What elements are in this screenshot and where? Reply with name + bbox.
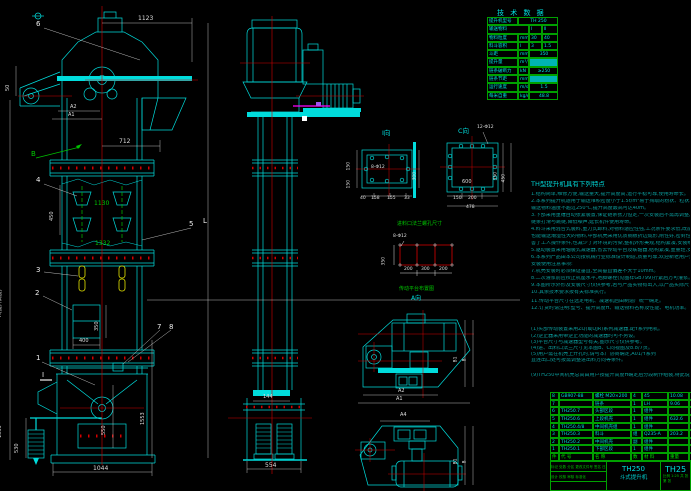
view-i-33: 33 bbox=[404, 197, 410, 202]
bom-wt bbox=[668, 407, 689, 415]
view-c-450: 450 bbox=[503, 174, 508, 183]
view-i-300: 300 bbox=[414, 172, 419, 181]
balloon-1: 1 bbox=[36, 355, 40, 362]
tech-value: 30 bbox=[529, 34, 542, 42]
inlet-holes: 8-Φ12 bbox=[393, 235, 407, 240]
bom-mat: 组件 bbox=[642, 445, 668, 453]
inlet-350: 350 bbox=[383, 257, 388, 266]
revision-row: 标记 处数 分区 更改文件号 签名 日期 bbox=[551, 462, 606, 472]
bom-code: GB907-88 bbox=[559, 392, 593, 400]
note-line: 善了工人操作条件,也减少了对环境的污染,整机外形美观,结构紧凑,安装维修方便,运… bbox=[531, 241, 690, 247]
note-line: 1.结构简单,维修方便,输送量大,提升高度高,运行平稳可靠,使用寿命长。 bbox=[531, 192, 690, 198]
bom-no: 2 bbox=[550, 438, 559, 446]
note-line: 12.订货时请注明:型号、提升高度H、输送物料名称及性能、电机功率。 bbox=[531, 306, 690, 312]
note-line: (9)TH250中间机壳总高由用户按提升高度H确定后分段制作组装,特此说明。 bbox=[531, 373, 690, 379]
drawing-product-name: 斗式提升机 bbox=[607, 473, 660, 481]
title-block-revision-area: 标记 处数 分区 更改文件号 签名 日期 设计 校核 审核 标准化 bbox=[551, 462, 607, 490]
tech-label: 运行速度 bbox=[487, 83, 518, 91]
scale-row: 比例 1:25 共 张 第 张 bbox=[661, 474, 690, 484]
inlet-200b: 200 bbox=[439, 268, 448, 273]
bom-name: 螺栓 M20×200 bbox=[593, 392, 631, 400]
bom-mat: 组件 bbox=[642, 423, 668, 431]
bom-no: 7 bbox=[550, 400, 559, 408]
tech-value: 40 bbox=[542, 34, 558, 42]
note-line: (2)逆止器采用带逆止功能的减速器时可不另设。 bbox=[531, 334, 690, 340]
note-line: 8.二次灌浆前应校正机座水平,地脚螺栓(见图样GB799)拧紧后方可灌浆。 bbox=[531, 276, 690, 282]
tech-value: 3 bbox=[529, 42, 542, 50]
front-view-chain-lines bbox=[36, 144, 122, 242]
note-line: 11.传动平台尺寸在选定电机、减速机后由制造厂统一确定。 bbox=[531, 299, 690, 305]
dim-1123: 1123 bbox=[138, 16, 153, 22]
balloon-4: 4 bbox=[36, 177, 40, 184]
drive-bottom-view-centerlines bbox=[355, 438, 466, 491]
view-i-150b: 150 bbox=[348, 180, 353, 189]
bom-qty: 1 bbox=[631, 400, 642, 408]
bom-header: 代 号 bbox=[559, 453, 593, 461]
bom-wt: 632.6 bbox=[668, 415, 689, 423]
bom-qty: 1 bbox=[631, 423, 642, 431]
tech-data-table: 提升机型号TH 250 输送物料ⅠⅡ 物料粒度mm3040 料斗容积l31.5 … bbox=[487, 17, 558, 100]
dim-400: 400 bbox=[79, 339, 89, 344]
note-line: 直连出口处可按需调整进出料方向等条件。 bbox=[531, 358, 690, 364]
view-i-title: I向 bbox=[382, 130, 390, 137]
tech-unit: mm bbox=[518, 50, 529, 58]
view-c-478: 478 bbox=[466, 206, 475, 211]
note-line: 4.料斗采用混合式装料,重力式卸料,对物料适应性强,工况条件要求低,既能输送干燥… bbox=[531, 227, 690, 233]
view-i-holes: 8-Φ12 bbox=[371, 166, 385, 171]
bom-wt: 203.2 bbox=[668, 430, 689, 438]
tech-unit: m/s bbox=[518, 83, 529, 91]
dim-1044: 1044 bbox=[93, 466, 108, 472]
dim-l: L bbox=[203, 218, 207, 225]
dim-1553-left: 1553 bbox=[0, 425, 3, 438]
balloon-8: 8 bbox=[169, 324, 173, 331]
section-arrow-b: B bbox=[31, 151, 36, 158]
drive-top-b: B bbox=[464, 358, 469, 361]
note-line: 10.其余技术要求按有关标准执行。 bbox=[531, 290, 690, 296]
front-view-dim-lines bbox=[10, 18, 208, 476]
balloon-2: 2 bbox=[35, 290, 39, 297]
tech-label: 提升机型号 bbox=[487, 17, 518, 25]
tech-value: TH 250 bbox=[518, 17, 558, 25]
bom-no: 8 bbox=[550, 392, 559, 400]
dim-1553-right: 1553 bbox=[141, 412, 146, 425]
drive-top-caption: 传动平台布置图 bbox=[399, 287, 434, 292]
note-line: 3.下部采用重锤自动张紧装置,保证链条张力恒定,一次安装后不需再调整,方便用户,… bbox=[531, 213, 690, 219]
bom-no: 1 bbox=[550, 445, 559, 453]
drive-bottom-view-geometry bbox=[360, 426, 462, 487]
side-view-centerlines bbox=[228, 16, 364, 474]
tech-label: 物料粒度 bbox=[487, 34, 518, 42]
tech-label: 输送物料 bbox=[487, 25, 529, 33]
dim-530: 530 bbox=[15, 443, 20, 453]
drive-top-a1: A1 bbox=[396, 397, 403, 402]
note-line: (1)头部传动装置采用ZQ(或QJR)系列减速器,配Y系列电机。 bbox=[531, 327, 690, 333]
dim-450: 450 bbox=[50, 211, 55, 221]
hover-grip[interactable] bbox=[316, 102, 321, 106]
selection-grip[interactable] bbox=[302, 116, 307, 121]
bom-header: 件号 bbox=[550, 453, 559, 461]
tech-value: 48.8 bbox=[529, 92, 558, 100]
tech-label: 链条破断力 bbox=[487, 67, 518, 75]
bom-name: 上段机壳 bbox=[593, 415, 631, 423]
view-c-geometry bbox=[447, 143, 498, 192]
drive-top-b1: B1 bbox=[455, 357, 460, 363]
tech-unit: kg/m bbox=[518, 92, 529, 100]
tech-label: 提升量 bbox=[487, 58, 518, 66]
drive-top-a2: A2 bbox=[398, 389, 405, 394]
note-line: 输送物料温度不超过250℃,提升高度最高可达40m。 bbox=[531, 206, 690, 212]
bom-header: 重量 bbox=[668, 453, 689, 461]
bom-no: 4 bbox=[550, 423, 559, 431]
dim-a1: A1 bbox=[68, 113, 75, 118]
bom-qty: 1 bbox=[631, 415, 642, 423]
bom-wt bbox=[668, 423, 689, 431]
bom-qty: 组 bbox=[631, 430, 642, 438]
view-c-title: C向 bbox=[458, 128, 469, 135]
tech-value: 350 bbox=[529, 50, 558, 58]
bom-name: 链条 bbox=[593, 400, 631, 408]
bom-name: 中间机壳 bbox=[593, 438, 631, 446]
view-i-40: 40 bbox=[360, 197, 366, 202]
bom-no: 6 bbox=[550, 407, 559, 415]
note-line: 链条打滑与跳链,降低噪声,延长机件使用寿命。 bbox=[531, 220, 690, 226]
tech-value-filled bbox=[529, 58, 558, 66]
front-view-centerlines bbox=[18, 6, 198, 465]
drive-bottom-b: B bbox=[464, 460, 469, 463]
bom-name: 头部区段 bbox=[593, 407, 631, 415]
bom-wt: 10.08 bbox=[668, 392, 689, 400]
tech-label: 每米自重 bbox=[487, 92, 518, 100]
tech-value: Ⅰ bbox=[529, 25, 542, 33]
bom-qty: 4 bbox=[631, 392, 642, 400]
bom-mat: 组件 bbox=[642, 438, 668, 446]
bom-qty: 副 bbox=[631, 438, 642, 446]
bom-code: TH250.4/8 bbox=[559, 423, 593, 431]
bom-mat: LH bbox=[642, 400, 668, 408]
bom-code: TH250.7 bbox=[559, 407, 593, 415]
tech-unit: m³/h bbox=[518, 58, 529, 66]
inlet-flange-grid bbox=[400, 245, 452, 265]
drive-bottom-b1: B1 bbox=[455, 459, 460, 465]
bom-code: TH250.3 bbox=[559, 430, 593, 438]
tech-unit: kN bbox=[518, 67, 529, 75]
dim-50: 50 bbox=[6, 85, 11, 91]
bom-name: 料斗 bbox=[593, 430, 631, 438]
bom-no: 5 bbox=[550, 415, 559, 423]
balloon-7: 7 bbox=[157, 324, 161, 331]
note-line: 2.本系列提升机适用于输送堆积密度小于1.5t/m³易于掏取的粉状、粒状、小块状… bbox=[531, 199, 690, 205]
side-view-geometry bbox=[243, 20, 361, 460]
inlet-200a: 200 bbox=[404, 268, 413, 273]
view-c-600: 600 bbox=[462, 180, 472, 185]
bom-header: 材 料 bbox=[642, 453, 668, 461]
bom-mat: 组件 bbox=[642, 407, 668, 415]
bom-name: 下部区段 bbox=[593, 445, 631, 453]
dim-1332: 1332 bbox=[95, 241, 110, 247]
bom-no: 3 bbox=[550, 430, 559, 438]
dim-350-door: 350 bbox=[95, 321, 100, 331]
bom-code: TH250.6 bbox=[559, 415, 593, 423]
title-block: 标记 处数 分区 更改文件号 签名 日期 设计 校核 审核 标准化 TH250 … bbox=[550, 461, 691, 491]
cad-drawing-sheet: 6 1123 A2 A1 50 712 B 4 450 1130 1332 3 … bbox=[0, 0, 691, 491]
note-line: (5)用户需在机壳上开孔时,请与本厂协商确定,A01/Y系列 bbox=[531, 352, 690, 358]
note-line: 安装使用注意事项: bbox=[531, 262, 690, 268]
dim-1130: 1130 bbox=[94, 201, 109, 207]
inlet-title: 进料口法兰螺孔尺寸 bbox=[397, 222, 442, 227]
tech-unit: mm bbox=[518, 34, 529, 42]
dim-554: 554 bbox=[265, 463, 276, 469]
note-line: 6.本系列产品由本公司按机械行业标准设计制造,质量可靠,欢迎新老用户选购。 bbox=[531, 255, 690, 261]
tech-value: 1.5 bbox=[529, 83, 558, 91]
balloon-3: 3 bbox=[36, 267, 40, 274]
tech-unit: mm bbox=[518, 75, 529, 83]
drawing-model: TH250 bbox=[607, 462, 660, 473]
tech-value: ≥250 bbox=[529, 67, 558, 75]
balloon-6: 6 bbox=[36, 21, 40, 28]
title-block-name-area: TH250 斗式提升机 bbox=[607, 462, 661, 490]
view-c-200: 200 bbox=[468, 197, 477, 202]
parts-list-table: 8GB907-88螺栓 M20×20044510.08标准件 7链条1LH9.0… bbox=[550, 392, 691, 461]
tech-value: Ⅱ bbox=[542, 25, 558, 33]
tech-label: 料斗容积 bbox=[487, 42, 518, 50]
dim-a2: A2 bbox=[70, 105, 77, 110]
drive-bottom-a4: A4 bbox=[400, 413, 407, 418]
view-c-holes: 12-Φ12 bbox=[477, 126, 494, 131]
note-line: (4)进、出料口法兰尺寸见本图B、C向视图及8.8/7页。 bbox=[531, 346, 690, 352]
note-line: 7.机壳安装时必须保证垂直,全高垂直偏差不大于10mm。 bbox=[531, 269, 690, 275]
tech-unit: l bbox=[518, 42, 529, 50]
balloon-5: 5 bbox=[189, 221, 193, 228]
inlet-300: 300 bbox=[421, 268, 430, 273]
view-c-350: 350 bbox=[495, 172, 500, 181]
bom-qty: 1 bbox=[631, 445, 642, 453]
bom-qty: 1 bbox=[631, 407, 642, 415]
bom-code: TH250.1 bbox=[559, 445, 593, 453]
drive-top-view-geometry bbox=[363, 314, 470, 388]
dim-h-height: H(提升高度) bbox=[0, 289, 3, 317]
drawing-number: TH25 bbox=[661, 462, 690, 474]
title-block-right-area: TH25 比例 1:25 共 张 第 张 bbox=[661, 462, 690, 490]
tech-value-filled bbox=[529, 75, 558, 83]
signature-row: 设计 校核 审核 标准化 bbox=[551, 472, 606, 482]
bom-name: 中间机壳组 bbox=[593, 423, 631, 431]
bom-code: TH250.2 bbox=[559, 438, 593, 446]
bom-wt: 9.06 bbox=[668, 400, 689, 408]
note-line: 也能输送潮湿性大的物料,中部机壳采用优质钢板折边成形,刚性好,密封性强,粉尘不外… bbox=[531, 234, 690, 240]
bom-header: 数量 bbox=[631, 453, 642, 461]
view-c-150: 150 bbox=[453, 197, 462, 202]
tech-value: 1.5 bbox=[542, 42, 558, 50]
dim-550: 550 bbox=[102, 425, 107, 435]
notes-title: TH型提升机具有下列特点 bbox=[531, 181, 690, 188]
bom-mat: Q235-A bbox=[642, 430, 668, 438]
bom-mat: 组件 bbox=[642, 415, 668, 423]
tech-label: 链条节距 bbox=[487, 75, 518, 83]
bom-wt bbox=[668, 445, 689, 453]
note-line: 9.本图所示外形及安装尺寸仅供参考,若与产品实物有出入,以产品实际尺寸为准。 bbox=[531, 283, 690, 289]
drive-top-view-label: A向 bbox=[411, 296, 421, 302]
tech-label: 斗距 bbox=[487, 50, 518, 58]
view-i-150a: 150 bbox=[348, 162, 353, 171]
bom-wt bbox=[668, 438, 689, 446]
dim-144: 144 bbox=[263, 395, 273, 400]
bom-header: 名 称 bbox=[593, 453, 631, 461]
view-i-dim-lines bbox=[357, 150, 419, 199]
section-mark-i: I bbox=[42, 372, 44, 379]
note-line: 5.驱动装置采用轴装式减速器,省去传动平台及联轴器,结构紧凑,重量轻,安装维修方… bbox=[531, 248, 690, 254]
bom-code bbox=[559, 400, 593, 408]
side-view-dim-lines bbox=[147, 300, 520, 473]
note-line: (3)平台尺寸与减速器型号有关,图示尺寸仅供参考。 bbox=[531, 340, 690, 346]
dim-712: 712 bbox=[119, 139, 130, 145]
view-i-158: 158 bbox=[371, 197, 380, 202]
view-i-155: 155 bbox=[387, 197, 396, 202]
bom-mat: 45 bbox=[642, 392, 668, 400]
